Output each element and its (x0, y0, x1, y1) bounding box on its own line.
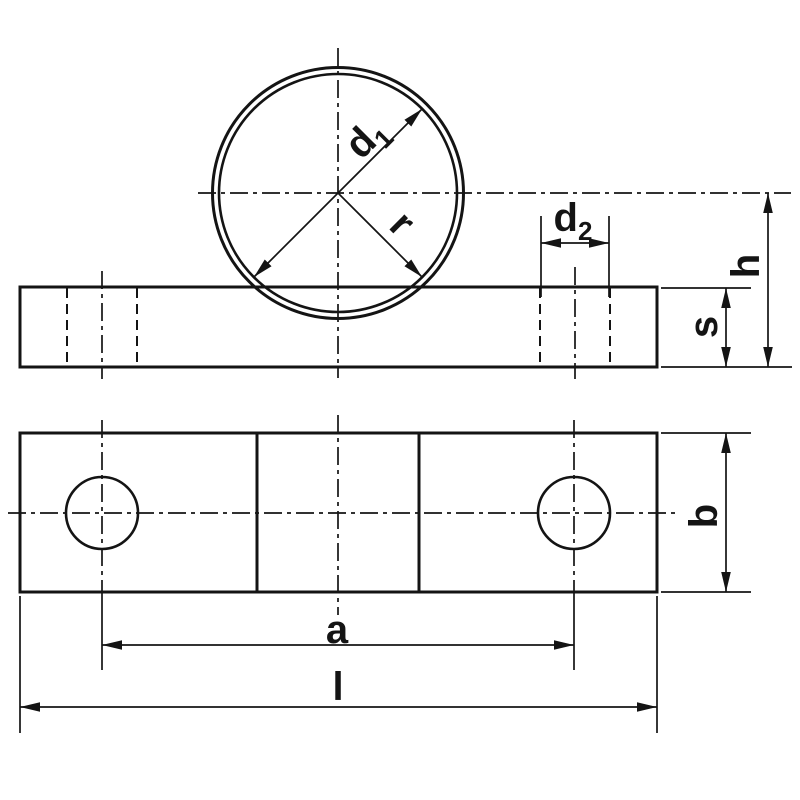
r-label: r (381, 203, 423, 245)
a-arrowhead (102, 640, 122, 650)
s-arrowhead (721, 288, 731, 308)
s-label: s (682, 316, 726, 338)
h-arrowhead (763, 193, 773, 213)
h-label: h (724, 254, 768, 278)
b-arrowhead (721, 433, 731, 453)
d1-label: d1 (336, 108, 399, 171)
a-arrowhead (554, 640, 574, 650)
front-view: d1 r d2 s (20, 48, 792, 379)
l-arrowhead (20, 702, 40, 712)
h-arrowhead (763, 347, 773, 367)
a-label: a (326, 608, 349, 652)
b-label: b (682, 504, 726, 528)
technical-drawing: d1 r d2 s (0, 0, 800, 800)
b-arrowhead (721, 572, 731, 592)
d2-label: d2 (554, 196, 593, 246)
s-arrowhead (721, 347, 731, 367)
dimension-a: a (102, 592, 574, 670)
dimension-r: r (338, 193, 425, 280)
technical-drawing-page: d1 r d2 s (0, 0, 800, 800)
top-view: b a l (8, 415, 751, 733)
l-arrowhead (637, 702, 657, 712)
dimension-s: s (661, 288, 751, 367)
l-label: l (332, 665, 343, 709)
